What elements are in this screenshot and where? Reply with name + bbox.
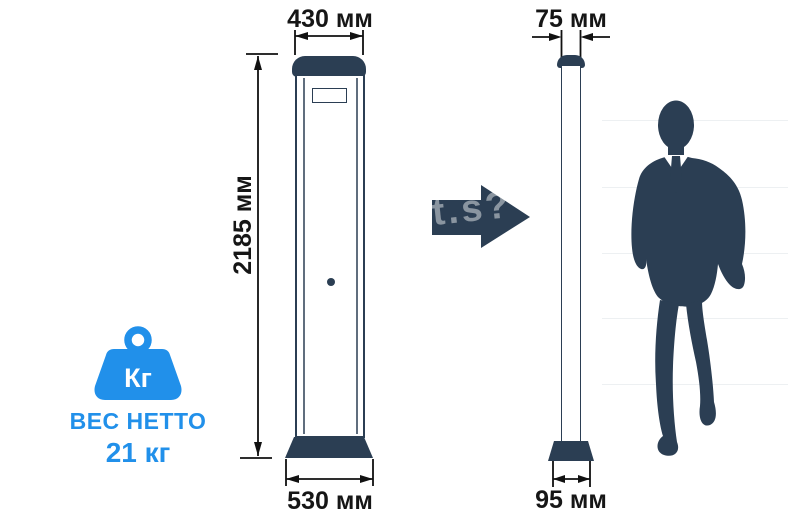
front-pillar-body xyxy=(295,74,365,438)
side-pillar-base xyxy=(548,441,594,461)
front-base-width-dimension xyxy=(280,459,380,489)
kettlebell-weight-icon: Кг xyxy=(93,324,183,402)
weight-icon-label: Кг xyxy=(124,363,152,393)
front-pillar-panel-line xyxy=(303,78,305,434)
weight-netto-title: ВЕС НЕТТО xyxy=(58,408,218,435)
front-pillar-base xyxy=(285,437,374,458)
right-arrow-icon xyxy=(430,183,532,250)
front-top-width-dimension xyxy=(283,26,378,58)
front-pillar-indicator-dot xyxy=(327,278,335,286)
man-silhouette xyxy=(630,94,758,460)
front-base-width-label: 530 мм xyxy=(270,487,390,516)
side-pillar-body xyxy=(561,66,581,443)
weight-netto-value: 21 кг xyxy=(58,437,218,469)
side-base-width-label: 95 мм xyxy=(521,486,621,515)
front-pillar-display xyxy=(312,88,347,103)
side-base-width-dimension xyxy=(546,461,596,489)
front-height-label: 2185 мм xyxy=(229,135,257,315)
front-pillar-panel-line xyxy=(356,78,358,434)
dimension-diagram: Кг ВЕС НЕТТО 21 кг 430 мм 2185 мм xyxy=(0,0,800,517)
